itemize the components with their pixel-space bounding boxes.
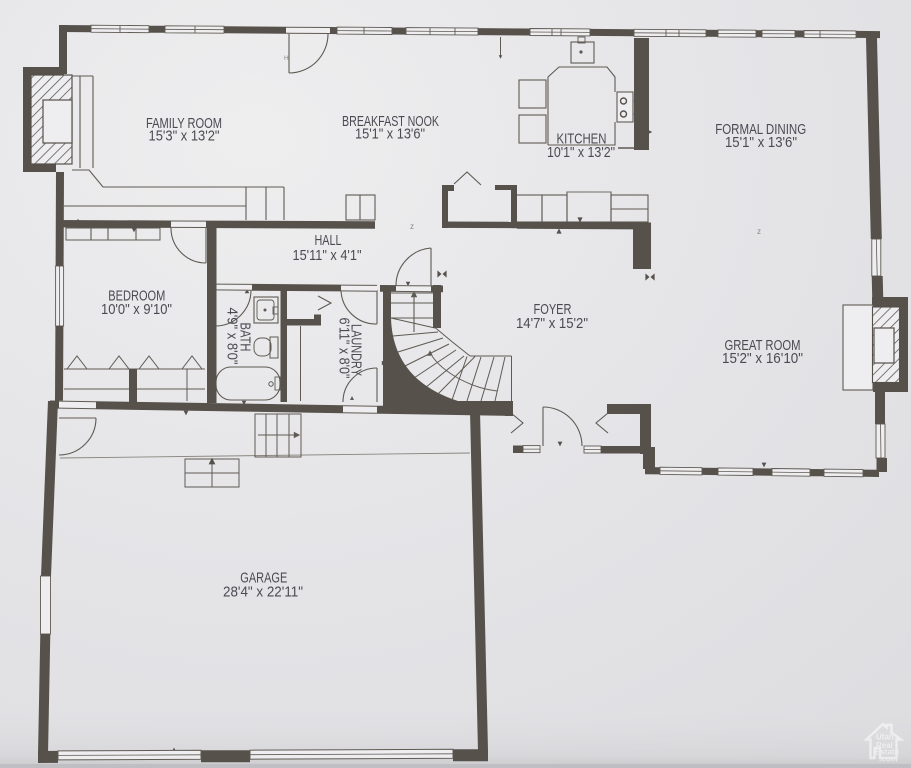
svg-text:14'7" x 15'2": 14'7" x 15'2" (516, 316, 588, 332)
svg-text:z: z (757, 227, 761, 236)
svg-text:10'1" x 13'2": 10'1" x 13'2" (547, 145, 615, 161)
svg-text:HALL: HALL (315, 233, 342, 249)
svg-text:15'1" x 13'6": 15'1" x 13'6" (355, 127, 425, 143)
svg-text:28'4" x 22'11": 28'4" x 22'11" (223, 585, 303, 601)
svg-text:4'9" x 8'0": 4'9" x 8'0" (224, 308, 240, 365)
svg-text:15'2" x 16'10": 15'2" x 16'10" (722, 351, 803, 367)
svg-text:15'11" x 4'1": 15'11" x 4'1" (293, 248, 362, 264)
svg-text:15'3" x 13'2": 15'3" x 13'2" (149, 129, 220, 145)
svg-text:H: H (284, 55, 289, 62)
svg-text:10'0" x 9'10": 10'0" x 9'10" (101, 302, 172, 318)
svg-text:15'1" x 13'6": 15'1" x 13'6" (725, 135, 797, 151)
svg-text:6'11" x 8'0": 6'11" x 8'0" (336, 318, 352, 379)
svg-text:.com: .com (879, 755, 898, 764)
svg-text:z: z (410, 222, 414, 231)
